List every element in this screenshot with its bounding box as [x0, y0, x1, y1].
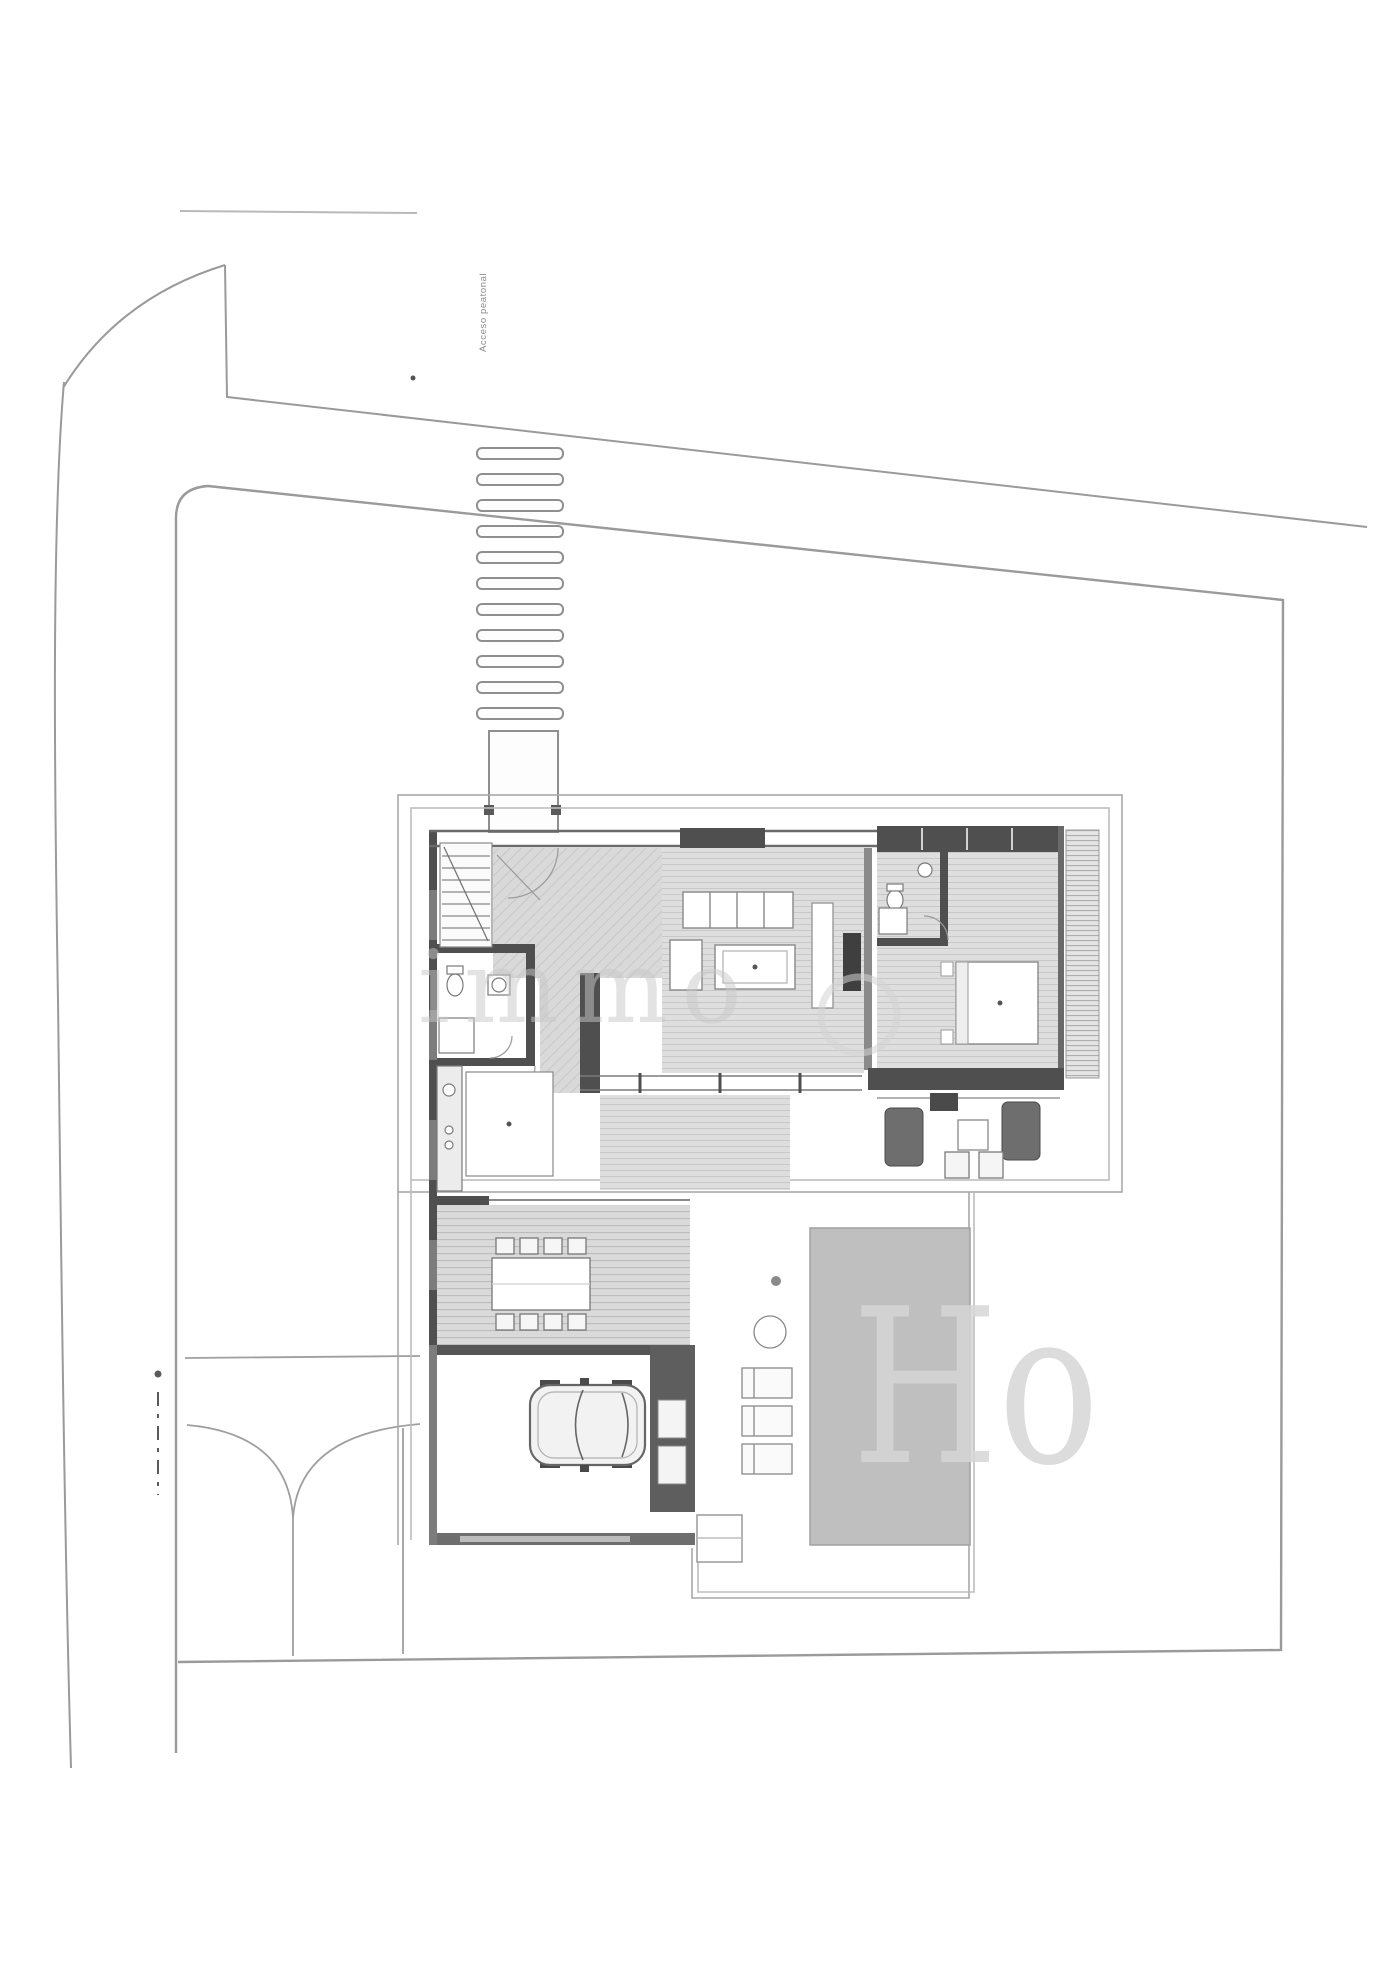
- pedestrian-access-path: Acceso peatonal: [411, 273, 564, 832]
- nightstand: [941, 1030, 953, 1044]
- garage-door: [460, 1536, 630, 1542]
- outdoor-chair: [1002, 1102, 1040, 1160]
- pool-side-table: [754, 1316, 786, 1348]
- car: [530, 1378, 645, 1472]
- driveway-entry: [185, 1356, 420, 1656]
- street-corner-curve: [63, 265, 225, 388]
- pool-marker-dot: [771, 1276, 781, 1286]
- ensuite-toilet: [887, 890, 903, 910]
- nightstand: [941, 962, 953, 976]
- street-edge-top: [180, 211, 417, 213]
- watermark-text-large: Ho: [852, 1264, 1099, 1514]
- pergola-louvers: [1066, 830, 1099, 1078]
- sofa: [683, 892, 793, 928]
- stool: [979, 1152, 1003, 1178]
- south-deck: [600, 1095, 790, 1190]
- street-centerline-marker: [155, 1371, 162, 1496]
- kitchen-sink: [443, 1084, 455, 1096]
- ensuite-shower: [879, 908, 907, 934]
- site-plan-sheet: Acceso peatonal: [0, 0, 1400, 1980]
- kitchen: [437, 1066, 553, 1191]
- stool: [945, 1152, 969, 1178]
- driveway-curb-left: [187, 1425, 293, 1518]
- floor-plan-drawing: Acceso peatonal: [0, 0, 1400, 1980]
- outdoor-lounge: [885, 1093, 1040, 1178]
- path-label: Acceso peatonal: [478, 273, 489, 352]
- street-edge-left: [55, 382, 71, 1768]
- watermark-text-mid: immo: [418, 929, 756, 1046]
- bedroom-closet: [877, 826, 1062, 852]
- plot-boundary-outer: [225, 265, 1367, 527]
- bed-pillows: [956, 962, 968, 1044]
- ensuite-basin: [918, 863, 932, 877]
- outdoor-chair: [885, 1108, 923, 1166]
- entry-walkway: [489, 731, 558, 832]
- sun-loungers: [742, 1368, 792, 1474]
- driveway-curb-right: [293, 1424, 420, 1518]
- outdoor-table: [958, 1120, 988, 1150]
- garage: [437, 1345, 742, 1562]
- survey-point: [411, 376, 416, 381]
